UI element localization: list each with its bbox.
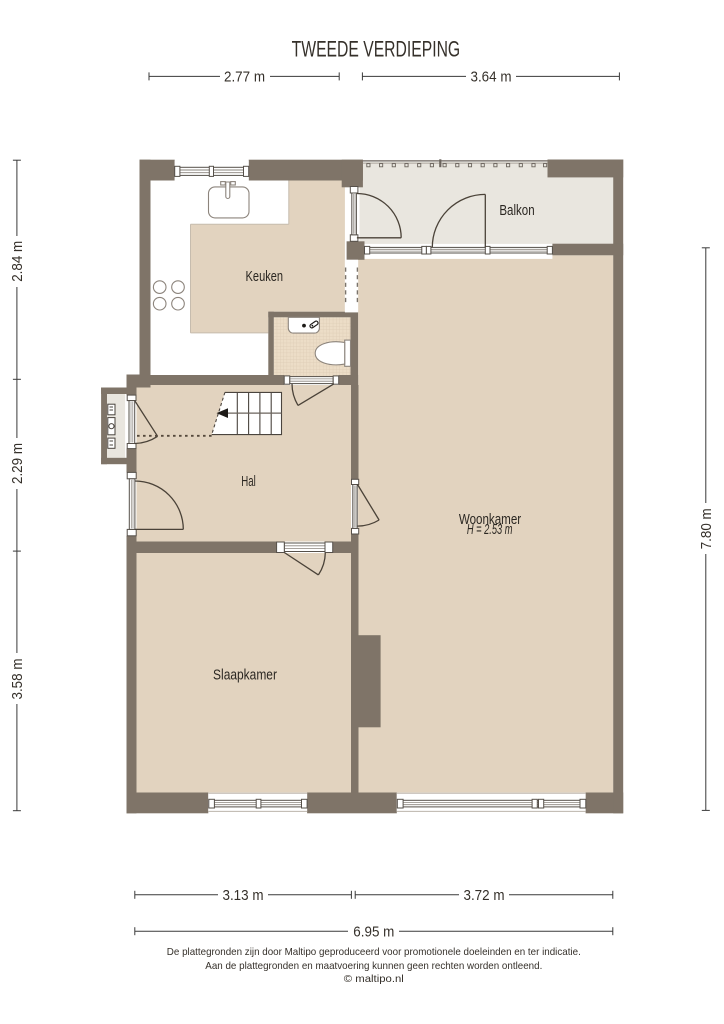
svg-text:3.58 m: 3.58 m bbox=[9, 659, 26, 700]
svg-text:2.77 m: 2.77 m bbox=[224, 69, 265, 86]
svg-text:6.95 m: 6.95 m bbox=[353, 923, 394, 940]
svg-text:2.84 m: 2.84 m bbox=[9, 241, 26, 282]
svg-text:Hal: Hal bbox=[241, 474, 256, 490]
svg-text:2.29 m: 2.29 m bbox=[9, 443, 26, 484]
svg-text:H = 2.53 m: H = 2.53 m bbox=[467, 522, 513, 538]
svg-text:Balkon: Balkon bbox=[499, 203, 534, 219]
svg-text:© maltipo.nl: © maltipo.nl bbox=[344, 974, 404, 985]
svg-text:Keuken: Keuken bbox=[246, 269, 284, 285]
svg-text:TWEEDE VERDIEPING: TWEEDE VERDIEPING bbox=[292, 36, 461, 61]
svg-text:De plattegronden zijn door Mal: De plattegronden zijn door Maltipo gepro… bbox=[167, 947, 581, 958]
svg-text:3.64 m: 3.64 m bbox=[471, 69, 512, 86]
svg-text:7.80 m: 7.80 m bbox=[698, 508, 715, 549]
svg-text:Slaapkamer: Slaapkamer bbox=[213, 668, 277, 684]
svg-text:3.72 m: 3.72 m bbox=[464, 887, 505, 904]
svg-text:Aan de plattegronden en maatvo: Aan de plattegronden en maatvoering kunn… bbox=[205, 961, 542, 972]
svg-text:3.13 m: 3.13 m bbox=[223, 887, 264, 904]
